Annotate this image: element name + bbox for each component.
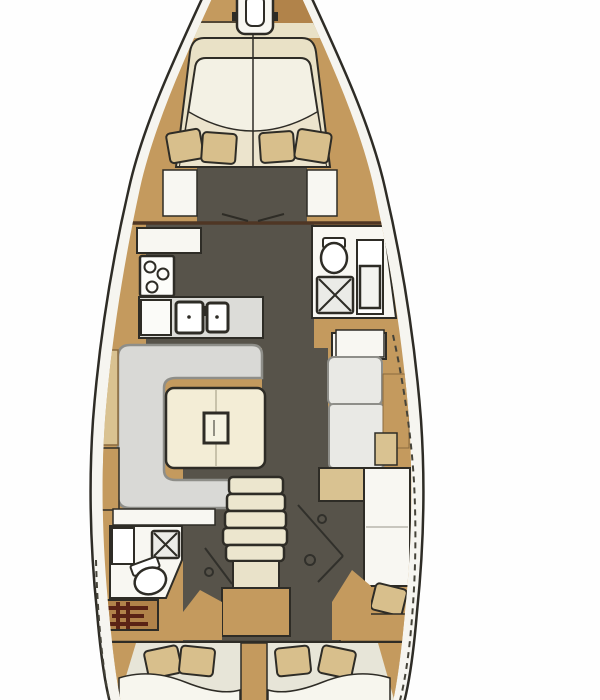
stair-landing [233, 561, 279, 591]
stair-tread [223, 528, 287, 545]
companionway-stairs [222, 477, 290, 636]
stair-tread [226, 545, 284, 561]
pillow-icon [275, 645, 312, 676]
stair-tread [225, 511, 286, 528]
washbasin-icon [112, 528, 134, 564]
passage-floor [197, 167, 307, 223]
pillow-icon [201, 132, 237, 164]
mast-post [204, 413, 228, 443]
drain-dot [215, 315, 219, 319]
locker-starboard [307, 170, 337, 216]
pillow-icon [259, 131, 295, 163]
yacht-floor-plan: Sailing yacht interior layout — top-view… [0, 0, 600, 700]
toilet-icon [321, 243, 347, 273]
starboard-locker [336, 330, 384, 357]
side-table [375, 433, 397, 465]
forward-cabin [166, 34, 332, 167]
stair-tread [229, 477, 283, 494]
refrigerator [141, 300, 171, 335]
locker-port [163, 170, 197, 216]
pillow-icon [179, 645, 216, 676]
engine-compartment [222, 588, 290, 636]
galley-worktop [137, 228, 201, 253]
pillow-icon [294, 129, 332, 164]
pillow-icon [166, 128, 205, 163]
drain-dot [187, 315, 191, 319]
starboard-settee-cushion [328, 357, 382, 405]
faucet-icon [202, 306, 206, 316]
anchor-windlass-icon [232, 0, 278, 34]
aft-head-counter [113, 509, 215, 525]
floor-plan-canvas: Sailing yacht interior layout — top-view… [0, 0, 600, 700]
aft-cabin-divider [241, 643, 267, 700]
washbasin-icon [360, 266, 380, 308]
stair-tread [227, 494, 285, 511]
heater-symbol [108, 602, 148, 629]
